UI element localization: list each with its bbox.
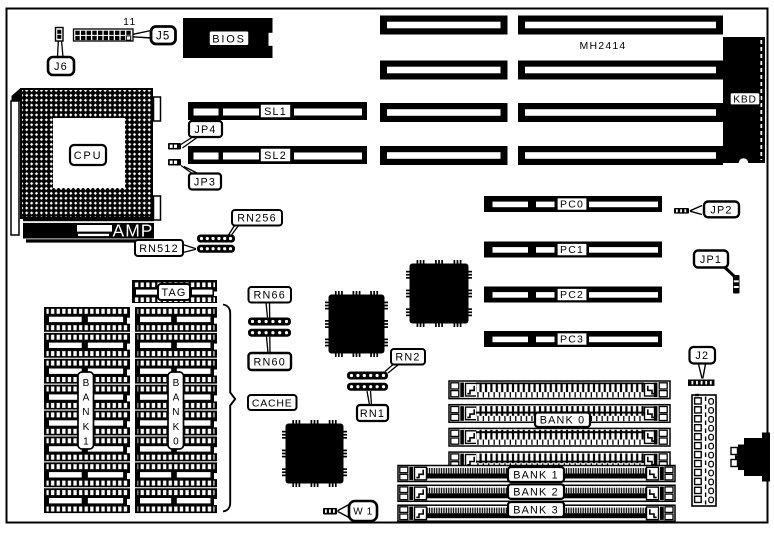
svg-text:1: 1 [83,436,89,447]
svg-text:RN512: RN512 [139,243,179,255]
svg-text:BIOS: BIOS [212,33,246,45]
svg-text:RN1: RN1 [360,408,385,420]
svg-text:RN2: RN2 [395,352,420,364]
svg-text:N: N [82,407,89,418]
svg-text:TAG: TAG [162,287,187,299]
svg-text:J5: J5 [156,30,171,42]
svg-text:PC0: PC0 [560,199,584,211]
svg-text:PC2: PC2 [560,289,584,301]
svg-text:BANK 0: BANK 0 [540,415,586,427]
svg-text:RN256: RN256 [237,213,277,225]
svg-text:BANK 1: BANK 1 [513,469,559,481]
svg-text:K: K [173,422,180,433]
svg-text:0: 0 [173,436,179,447]
svg-text:B: B [83,378,90,389]
svg-text:SL2: SL2 [264,150,287,162]
svg-text:JP2: JP2 [710,204,732,216]
svg-text:J6: J6 [54,61,68,73]
svg-text:PC3: PC3 [560,334,584,346]
svg-text:RN66: RN66 [254,290,286,302]
svg-text:11: 11 [123,17,136,28]
svg-text:B: B [173,378,180,389]
svg-text:BANK 2: BANK 2 [513,486,559,498]
svg-text:J2: J2 [695,350,709,362]
svg-text:JP1: JP1 [700,254,722,266]
svg-text:K: K [83,422,90,433]
svg-text:BANK 3: BANK 3 [513,504,559,516]
svg-text:MH2414: MH2414 [580,40,627,52]
svg-text:CACHE: CACHE [252,397,293,409]
svg-text:PC1: PC1 [560,244,584,256]
svg-text:AMP: AMP [113,221,154,241]
svg-text:N: N [172,407,179,418]
svg-text:KBD: KBD [733,95,757,106]
svg-text:JP4: JP4 [194,124,216,136]
svg-text:A: A [173,393,180,404]
svg-text:CPU: CPU [74,150,103,162]
svg-text:RN60: RN60 [254,356,286,368]
svg-text:SL1: SL1 [264,106,287,118]
svg-text:A: A [83,393,90,404]
svg-text:W 1: W 1 [353,507,373,518]
svg-text:JP3: JP3 [194,176,216,188]
